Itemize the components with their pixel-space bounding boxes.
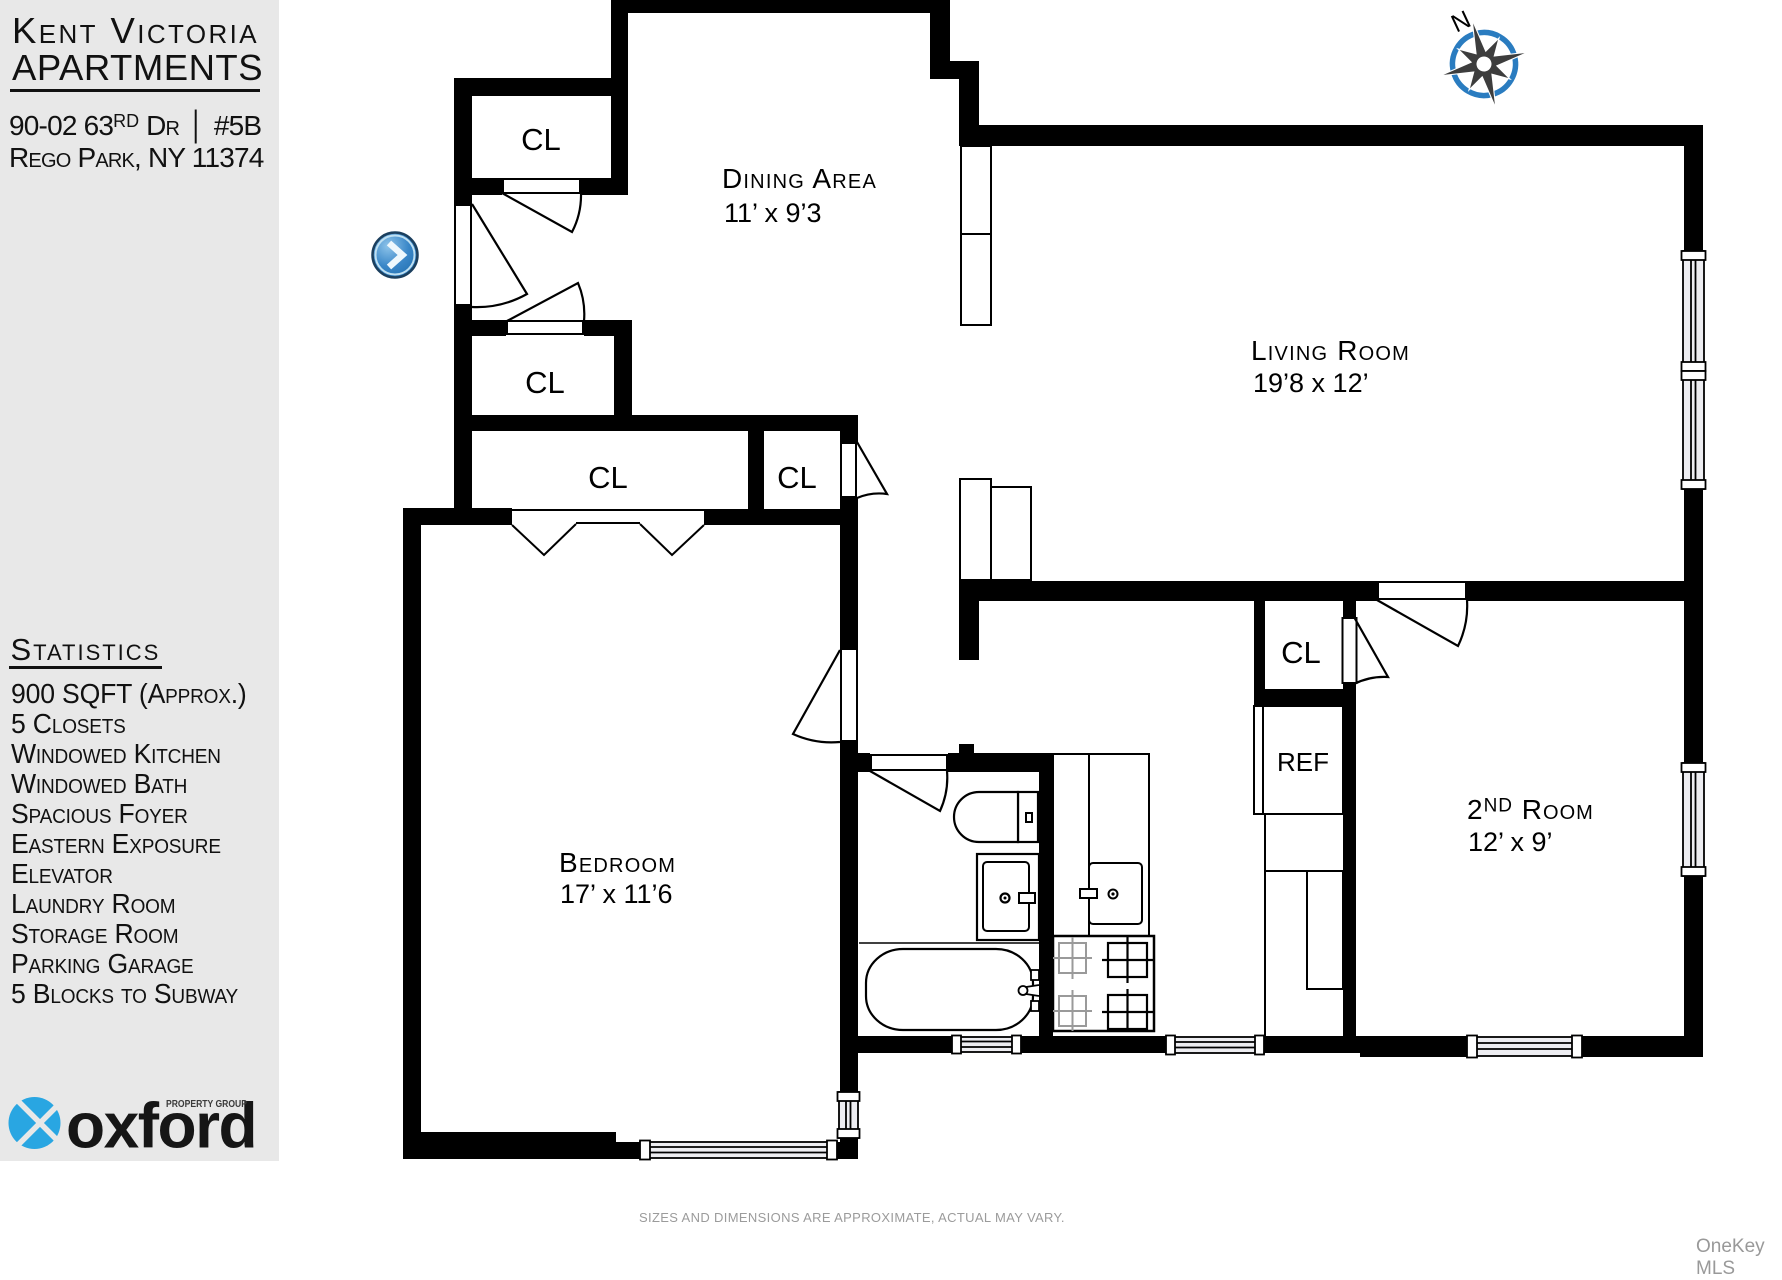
svg-text:Dining Area: Dining Area: [722, 163, 877, 194]
svg-text:17’ x 11’6: 17’ x 11’6: [560, 879, 673, 909]
svg-text:11’ x 9’3: 11’ x 9’3: [724, 198, 822, 228]
svg-text:2ND Room: 2ND Room: [1467, 794, 1594, 825]
svg-text:CL: CL: [1281, 635, 1321, 670]
svg-text:CL: CL: [525, 365, 565, 400]
svg-text:12’ x 9’: 12’ x 9’: [1468, 827, 1553, 857]
svg-text:REF: REF: [1277, 747, 1329, 777]
svg-text:Bedroom: Bedroom: [559, 847, 676, 878]
svg-text:CL: CL: [521, 122, 561, 157]
svg-text:CL: CL: [588, 460, 628, 495]
svg-text:CL: CL: [777, 460, 817, 495]
svg-text:Living Room: Living Room: [1251, 335, 1410, 366]
svg-text:19’8 x 12’: 19’8 x 12’: [1253, 368, 1369, 398]
